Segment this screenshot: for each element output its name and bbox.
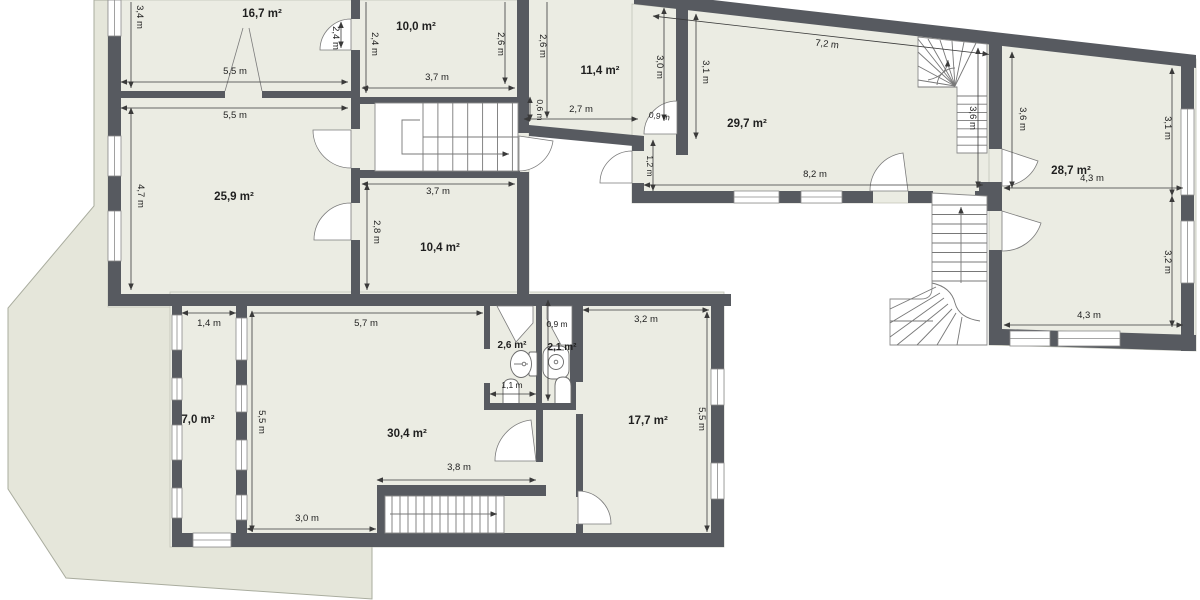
svg-text:2,8 m: 2,8 m: [371, 220, 382, 244]
svg-text:5,5 m: 5,5 m: [223, 66, 247, 77]
svg-text:17,7 m²: 17,7 m²: [628, 415, 668, 427]
svg-text:5,7 m: 5,7 m: [354, 318, 378, 329]
svg-text:10,4 m²: 10,4 m²: [420, 242, 460, 254]
svg-text:2,6 m: 2,6 m: [495, 32, 506, 56]
svg-text:3,6 m: 3,6 m: [1017, 107, 1028, 131]
svg-text:28,7 m²: 28,7 m²: [1051, 165, 1091, 177]
svg-text:3,7 m: 3,7 m: [426, 186, 450, 197]
svg-text:11,4 m²: 11,4 m²: [581, 65, 620, 77]
svg-text:3,2 m: 3,2 m: [1162, 250, 1173, 274]
svg-text:2,4 m: 2,4 m: [369, 32, 380, 56]
svg-text:2,6 m²: 2,6 m²: [498, 340, 528, 351]
svg-text:10,0 m²: 10,0 m²: [396, 21, 436, 33]
svg-text:3,7 m: 3,7 m: [425, 72, 449, 83]
svg-text:3,2 m: 3,2 m: [634, 314, 658, 325]
svg-text:3,0 m: 3,0 m: [295, 513, 319, 524]
svg-text:3,8 m: 3,8 m: [447, 462, 471, 473]
svg-text:2,4 m: 2,4 m: [330, 26, 341, 50]
svg-text:4,7 m: 4,7 m: [135, 184, 146, 208]
svg-text:5,5 m: 5,5 m: [256, 410, 267, 434]
svg-text:2,1 m²: 2,1 m²: [548, 342, 578, 353]
svg-text:30,4 m²: 30,4 m²: [387, 428, 427, 440]
svg-text:1,4 m: 1,4 m: [197, 318, 221, 329]
svg-text:1,2 m: 1,2 m: [645, 155, 655, 176]
svg-text:29,7 m²: 29,7 m²: [727, 118, 767, 130]
svg-text:16,7 m²: 16,7 m²: [242, 8, 282, 20]
svg-text:2,7 m: 2,7 m: [569, 104, 593, 115]
svg-text:2,6 m: 2,6 m: [537, 34, 548, 58]
svg-text:0,9 m: 0,9 m: [546, 319, 567, 329]
svg-text:3,6 m: 3,6 m: [967, 106, 978, 130]
svg-text:5,5 m: 5,5 m: [696, 407, 707, 431]
svg-text:8,2 m: 8,2 m: [803, 169, 827, 180]
svg-text:3,1 m: 3,1 m: [700, 60, 711, 84]
svg-text:3,0 m: 3,0 m: [654, 55, 665, 79]
svg-text:7,0 m²: 7,0 m²: [181, 414, 214, 426]
svg-text:25,9 m²: 25,9 m²: [214, 191, 254, 203]
svg-text:1,1 m: 1,1 m: [501, 380, 522, 390]
svg-text:3,1 m: 3,1 m: [1162, 116, 1173, 140]
svg-text:3,4 m: 3,4 m: [134, 5, 145, 29]
svg-text:0,6 m: 0,6 m: [535, 99, 545, 120]
svg-text:4,3 m: 4,3 m: [1077, 310, 1101, 321]
svg-text:5,5 m: 5,5 m: [223, 110, 247, 121]
